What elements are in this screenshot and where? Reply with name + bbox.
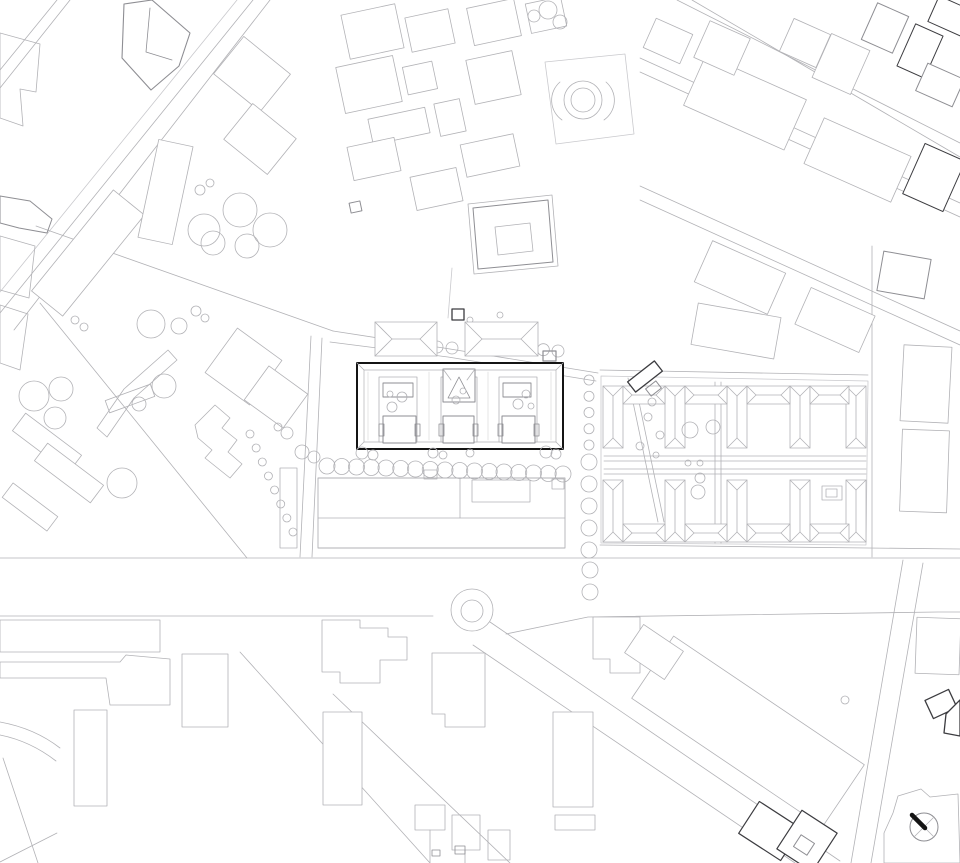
estate-bottom-link-2 bbox=[685, 524, 727, 542]
main-tree-row-tree bbox=[452, 463, 468, 479]
tr-block-2 bbox=[804, 118, 911, 202]
bm-small-sq-2 bbox=[432, 850, 440, 856]
mid-tree-col-end-1 bbox=[582, 562, 598, 578]
estate-top-bar-3 bbox=[727, 386, 747, 448]
tm-block-4 bbox=[525, 0, 566, 33]
mid-tree-col-lower-tree bbox=[581, 454, 597, 470]
tl-edge-building-2 bbox=[0, 236, 35, 298]
campus-tree-8 bbox=[107, 468, 137, 498]
campus-tree-21 bbox=[201, 314, 209, 322]
campus-tree-6 bbox=[152, 374, 176, 398]
central-bold-square bbox=[452, 309, 464, 320]
tr-right-dark-1 bbox=[903, 143, 960, 211]
court3-bottom-annex bbox=[502, 416, 535, 443]
mid-tree-col-upper-tree bbox=[584, 424, 594, 434]
tm-block-6 bbox=[402, 61, 437, 95]
estate-south-edge bbox=[600, 545, 960, 549]
main-tree-row-tree bbox=[349, 459, 365, 475]
bl-rect-2 bbox=[182, 654, 228, 727]
estate-top-link-3 bbox=[747, 386, 790, 404]
tl-edge-dark-building bbox=[0, 196, 52, 233]
tr-block-5 bbox=[643, 18, 693, 64]
main-tree-row-tree bbox=[363, 460, 379, 476]
tm-block-1 bbox=[341, 4, 404, 59]
main-street-edge-1 bbox=[0, 0, 253, 313]
campus-tree-10 bbox=[223, 193, 257, 227]
tree-pair-1 bbox=[295, 445, 309, 459]
mid-tree-col-lower-tree bbox=[581, 498, 597, 514]
tm-dark-square bbox=[349, 201, 362, 213]
tm-block-7 bbox=[466, 51, 521, 105]
estate-square-inner bbox=[826, 489, 837, 497]
campus-bar-building bbox=[105, 384, 155, 413]
campus-tree-9 bbox=[188, 214, 220, 246]
right-edge-building-2 bbox=[900, 429, 950, 513]
circle-building-plot bbox=[545, 54, 634, 144]
tm-block-3 bbox=[467, 0, 522, 46]
estate-tree-9 bbox=[653, 452, 659, 458]
base-tree-7 bbox=[551, 449, 561, 459]
estate-top-link-2 bbox=[685, 386, 727, 404]
tr-corner-dark-1 bbox=[861, 3, 908, 53]
main-tree-row-tree bbox=[422, 462, 438, 478]
estate-tree-7 bbox=[636, 442, 644, 450]
bottom-left-diag-1 bbox=[3, 758, 38, 863]
campus-tree-13 bbox=[235, 234, 259, 258]
circle-building-wing-right bbox=[604, 82, 614, 120]
campus-tree-16 bbox=[281, 427, 293, 439]
site-scatter-tree-5 bbox=[497, 312, 503, 318]
campus-boundary-trees-tree bbox=[246, 430, 254, 438]
main-tree-row-tree bbox=[437, 462, 453, 478]
tl-dark-building bbox=[122, 0, 190, 90]
main-tree-row-tree bbox=[408, 461, 424, 477]
tm-block-5 bbox=[336, 55, 403, 113]
bm-small-1 bbox=[415, 805, 445, 830]
estate-top-bar-1 bbox=[603, 386, 623, 448]
campus-step-building bbox=[195, 405, 242, 478]
tm-court-building-outer bbox=[473, 200, 553, 269]
campus-tree-18 bbox=[195, 185, 205, 195]
estate-top-link-1 bbox=[623, 386, 665, 404]
estate-top-bar-4 bbox=[790, 386, 810, 448]
tm-block-8 bbox=[434, 99, 466, 137]
estate-bottom-link-1 bbox=[623, 524, 665, 542]
site-plan-svg bbox=[0, 0, 960, 863]
estate-bottom-bar-1 bbox=[603, 480, 623, 542]
tl-long-building bbox=[138, 139, 193, 244]
estate-tree-2 bbox=[644, 413, 652, 421]
bm-tall-rect bbox=[323, 712, 362, 805]
campus-tree-14 bbox=[71, 316, 79, 324]
mid-tree-col-lower-tree bbox=[581, 542, 597, 558]
tl-block-1 bbox=[214, 36, 291, 111]
br-right-building bbox=[915, 617, 960, 675]
campus-tree-4 bbox=[137, 310, 165, 338]
central-wing-left bbox=[375, 322, 437, 356]
estate-tree-5 bbox=[691, 485, 705, 499]
campus-slab-3 bbox=[2, 483, 58, 531]
campus-tree-15 bbox=[80, 323, 88, 331]
main-tree-row-tree bbox=[393, 461, 409, 477]
main-tree-row-tree bbox=[467, 463, 483, 479]
site-top-trees-1-tree bbox=[446, 342, 458, 354]
bm-right-rect-2 bbox=[555, 815, 595, 830]
mid-tree-col-lower-tree bbox=[581, 520, 597, 536]
main-tree-row-tree bbox=[481, 464, 497, 480]
tr-block-1 bbox=[684, 55, 807, 150]
campus-tree-2 bbox=[49, 377, 73, 401]
tl-edge-building-3 bbox=[0, 305, 28, 370]
campus-tree-20 bbox=[191, 306, 201, 316]
circle-building-outer bbox=[564, 81, 602, 119]
campus-tree-1 bbox=[19, 381, 49, 411]
circle-building-inner bbox=[571, 88, 595, 112]
bm-notch-building bbox=[432, 653, 485, 727]
corner-street-2 bbox=[0, 0, 70, 88]
bottom-left-diag-2 bbox=[0, 833, 57, 862]
central-wing-right bbox=[465, 322, 538, 356]
tr-block-3 bbox=[694, 241, 785, 315]
campus-boundary-trees-tree bbox=[264, 472, 272, 480]
tm-block-2 bbox=[405, 9, 455, 52]
estate-bottom-bar-2 bbox=[665, 480, 685, 542]
roundabout-outer bbox=[451, 589, 493, 631]
estate-bottom-bar-4 bbox=[790, 480, 810, 542]
bl-curve-1 bbox=[0, 722, 60, 748]
bl-curve-2 bbox=[0, 735, 56, 761]
mid-tree-col-lower-tree bbox=[581, 476, 597, 492]
circle-building-wing-left bbox=[552, 82, 562, 120]
main-tree-row-tree bbox=[334, 459, 350, 475]
mid-tree-col-upper-tree bbox=[584, 408, 594, 418]
tm-block-9 bbox=[368, 107, 430, 144]
campus-boundary-trees-tree bbox=[252, 444, 260, 452]
bl-strip-2 bbox=[0, 655, 170, 705]
tl-dark-building-inner bbox=[146, 8, 172, 60]
main-tree-row-tree bbox=[319, 458, 335, 474]
bm-right-rect-1 bbox=[553, 712, 593, 807]
mid-tree-col-upper-tree bbox=[584, 440, 594, 450]
site-west-street-1 bbox=[300, 336, 311, 557]
court1-bottom-annex bbox=[383, 416, 416, 443]
mid-tree-col-upper bbox=[584, 375, 594, 450]
tm-block-10 bbox=[347, 137, 401, 180]
estate-bottom-link-3 bbox=[747, 524, 790, 542]
campus-chevron-building bbox=[97, 350, 177, 437]
mid-tree-col-end-2 bbox=[582, 584, 598, 600]
tl-block-2 bbox=[224, 104, 296, 175]
estate-bottom-link-4 bbox=[810, 524, 849, 542]
court2-bottom-annex bbox=[443, 416, 474, 443]
base-tree-4 bbox=[439, 451, 447, 459]
mid-tree-col-lower bbox=[581, 454, 597, 558]
estate-top-link-4 bbox=[810, 386, 849, 404]
mid-tree-col-upper-tree bbox=[584, 391, 594, 401]
bl-strip-1 bbox=[0, 620, 160, 652]
bl-rect-1 bbox=[74, 710, 107, 806]
right-edge-building-1 bbox=[900, 345, 952, 423]
bm-small-2 bbox=[452, 815, 480, 850]
site-plan bbox=[0, 0, 960, 863]
campus-boundary-trees-tree bbox=[258, 458, 266, 466]
campus-boundary-trees-tree bbox=[271, 486, 279, 494]
estate-top-bar-2 bbox=[665, 386, 685, 448]
tr-corner-dark-3 bbox=[928, 0, 960, 36]
tr-block-4 bbox=[795, 287, 875, 352]
campus-sw-boundary bbox=[40, 303, 247, 558]
steep-road-1 bbox=[851, 560, 903, 863]
tr-right-dark-2 bbox=[877, 251, 931, 299]
long-building-outer bbox=[318, 478, 565, 548]
main-tree-row-tree bbox=[378, 460, 394, 476]
tm-block-12 bbox=[410, 167, 463, 210]
base-tree-5 bbox=[466, 449, 474, 457]
base-tree-2 bbox=[368, 450, 378, 460]
estate-bottom-bar-3 bbox=[727, 480, 747, 542]
campus-tree-19 bbox=[206, 179, 214, 187]
campus-tree-5 bbox=[171, 318, 187, 334]
estate-tree-8 bbox=[706, 420, 720, 434]
tl-edge-building-1 bbox=[0, 33, 40, 126]
tm-block-11 bbox=[460, 134, 520, 178]
estate-tree-6 bbox=[656, 431, 664, 439]
br-tree bbox=[841, 696, 849, 704]
campus-tree-3 bbox=[44, 407, 66, 429]
tree-pair-2 bbox=[308, 451, 320, 463]
bm-step-building bbox=[322, 620, 407, 683]
estate-tree-4 bbox=[695, 473, 705, 483]
estate-square bbox=[822, 486, 842, 500]
